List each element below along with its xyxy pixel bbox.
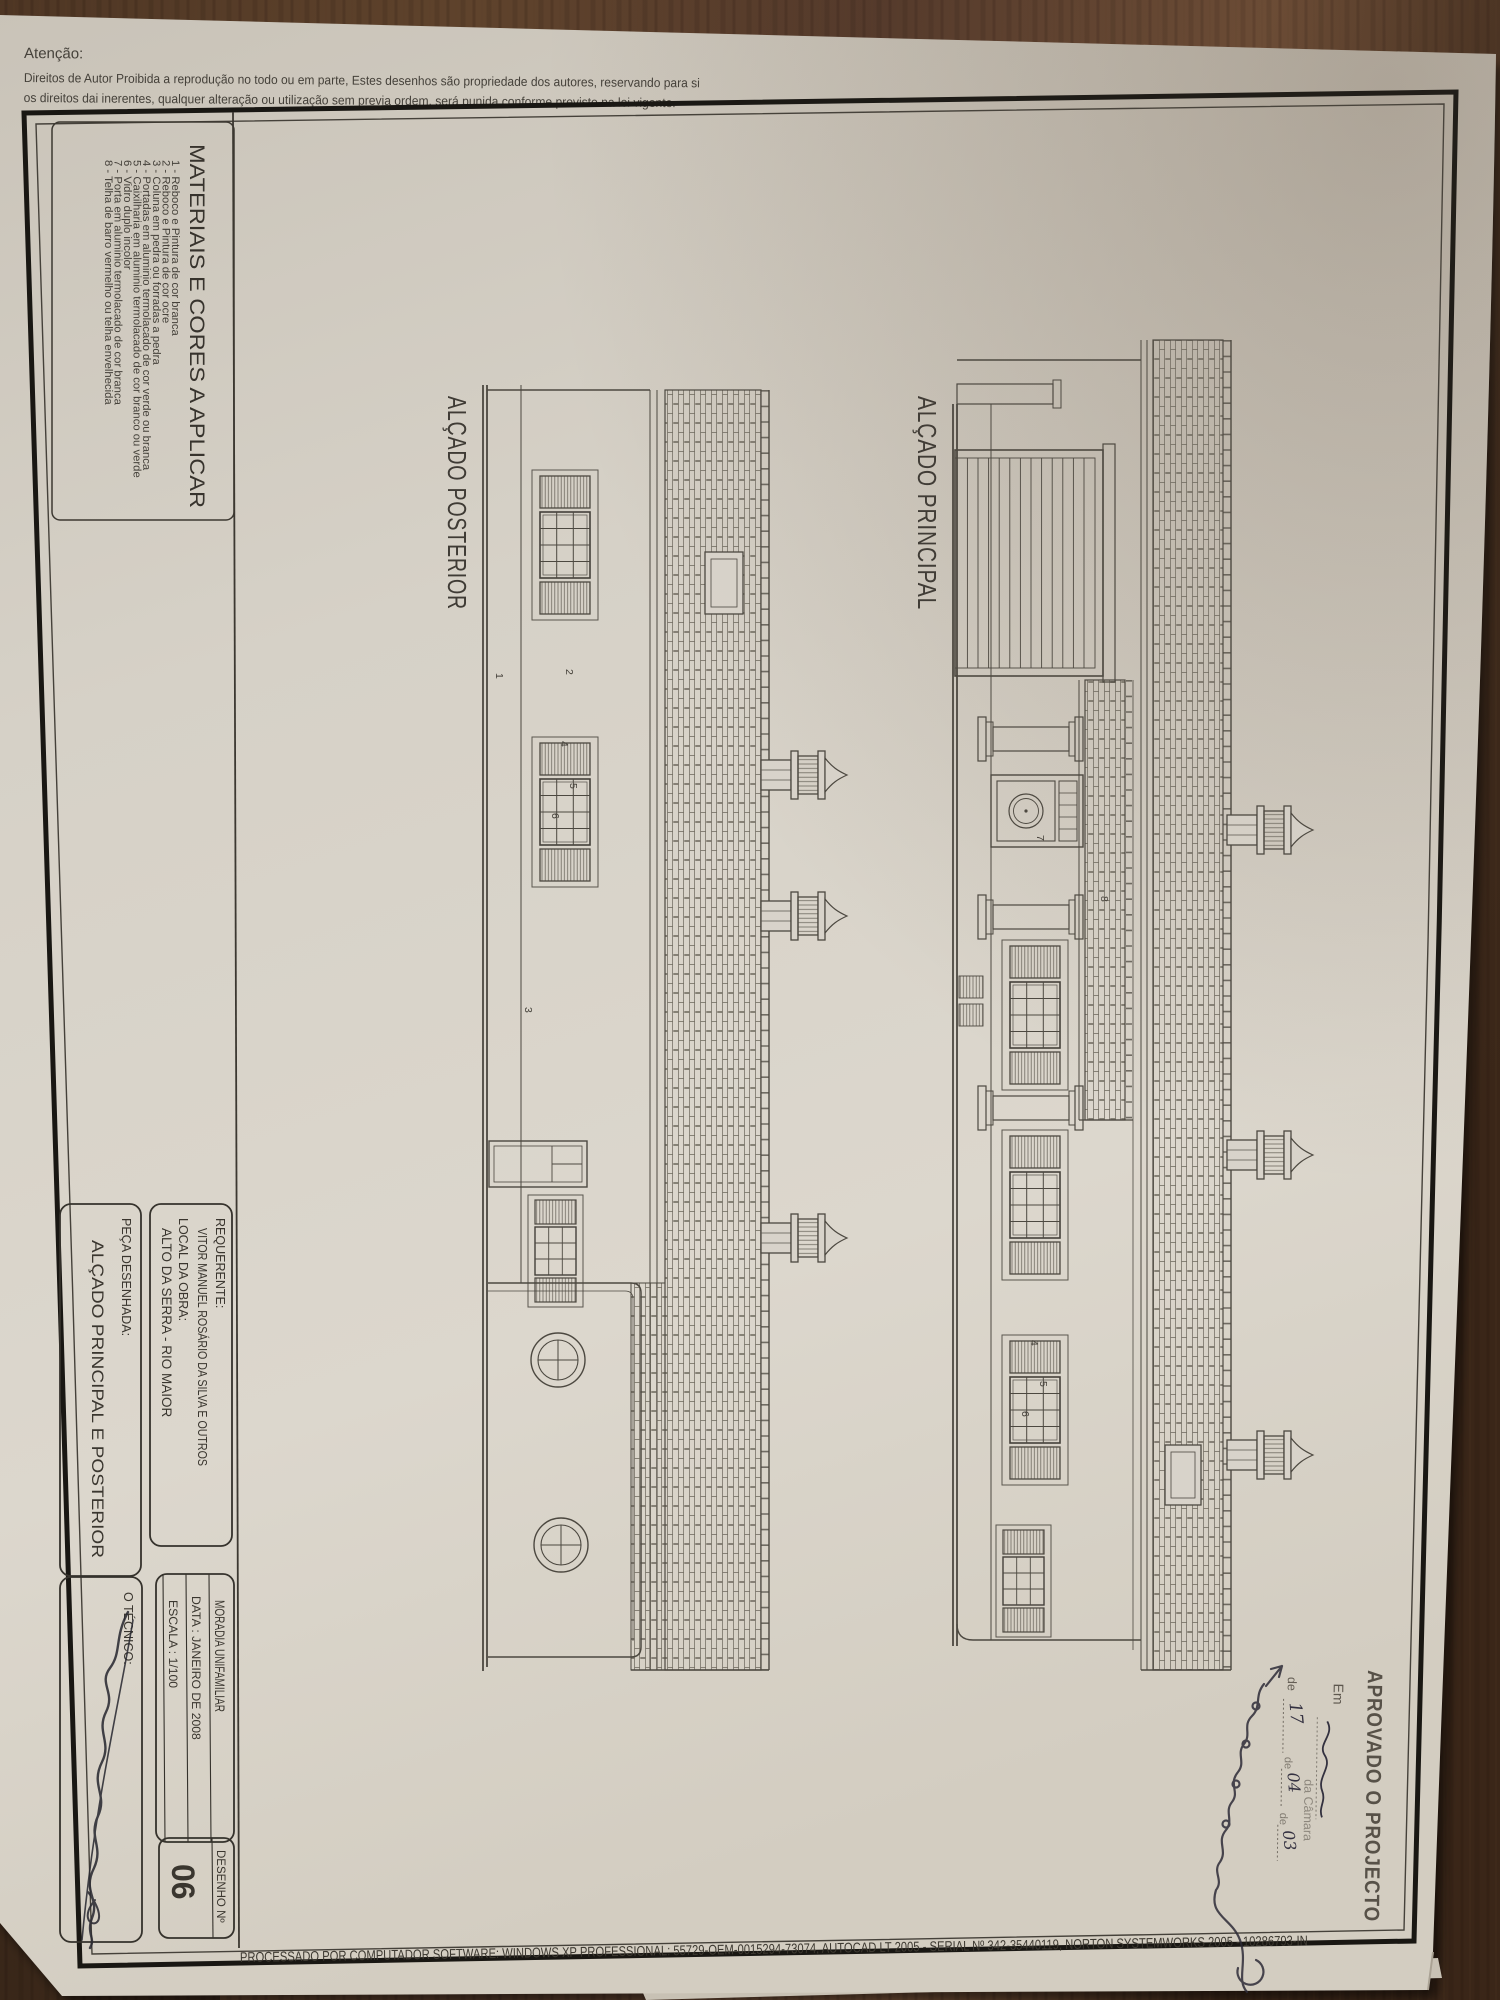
photo-of-architectural-drawing: Atenção: Direitos de Autor Proibida a re… — [0, 0, 1500, 2000]
photo-lighting-overlay — [0, 0, 1500, 2000]
drawing-sheet-photo: Atenção: Direitos de Autor Proibida a re… — [0, 0, 1500, 2000]
